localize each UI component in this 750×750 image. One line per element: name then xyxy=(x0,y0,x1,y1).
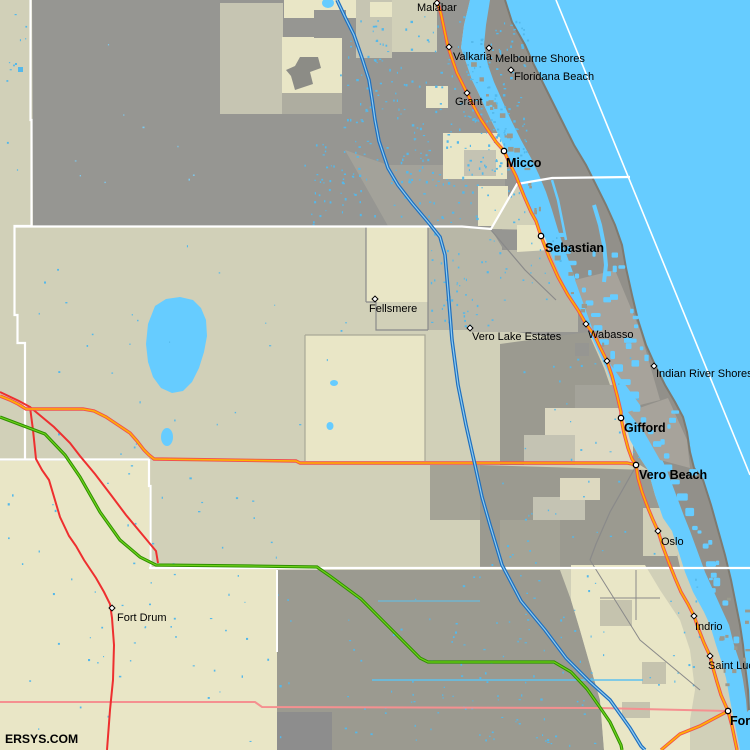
svg-text:Fort Drum: Fort Drum xyxy=(117,612,167,624)
svg-text:Malabar: Malabar xyxy=(417,2,457,14)
svg-text:Valkaria: Valkaria xyxy=(453,51,493,63)
svg-text:Melbourne Shores: Melbourne Shores xyxy=(495,53,585,65)
svg-text:Vero Lake Estates: Vero Lake Estates xyxy=(472,331,562,343)
svg-text:Gifford: Gifford xyxy=(624,421,666,435)
svg-text:Indian River Shores: Indian River Shores xyxy=(656,368,750,380)
svg-text:Oslo: Oslo xyxy=(661,536,684,548)
svg-text:Floridana Beach: Floridana Beach xyxy=(514,71,594,83)
svg-text:ERSYS.COM: ERSYS.COM xyxy=(5,732,78,746)
svg-text:Saint Lucie: Saint Lucie xyxy=(708,660,750,672)
svg-text:Sebastian: Sebastian xyxy=(545,241,604,255)
svg-text:Indrio: Indrio xyxy=(695,621,723,633)
svg-text:Fort Pierce: Fort Pierce xyxy=(730,714,750,728)
svg-text:Vero Beach: Vero Beach xyxy=(639,468,707,482)
svg-text:Wabasso: Wabasso xyxy=(588,329,633,341)
svg-text:Micco: Micco xyxy=(506,156,542,170)
svg-text:Grant: Grant xyxy=(455,96,483,108)
svg-text:Fellsmere: Fellsmere xyxy=(369,303,417,315)
